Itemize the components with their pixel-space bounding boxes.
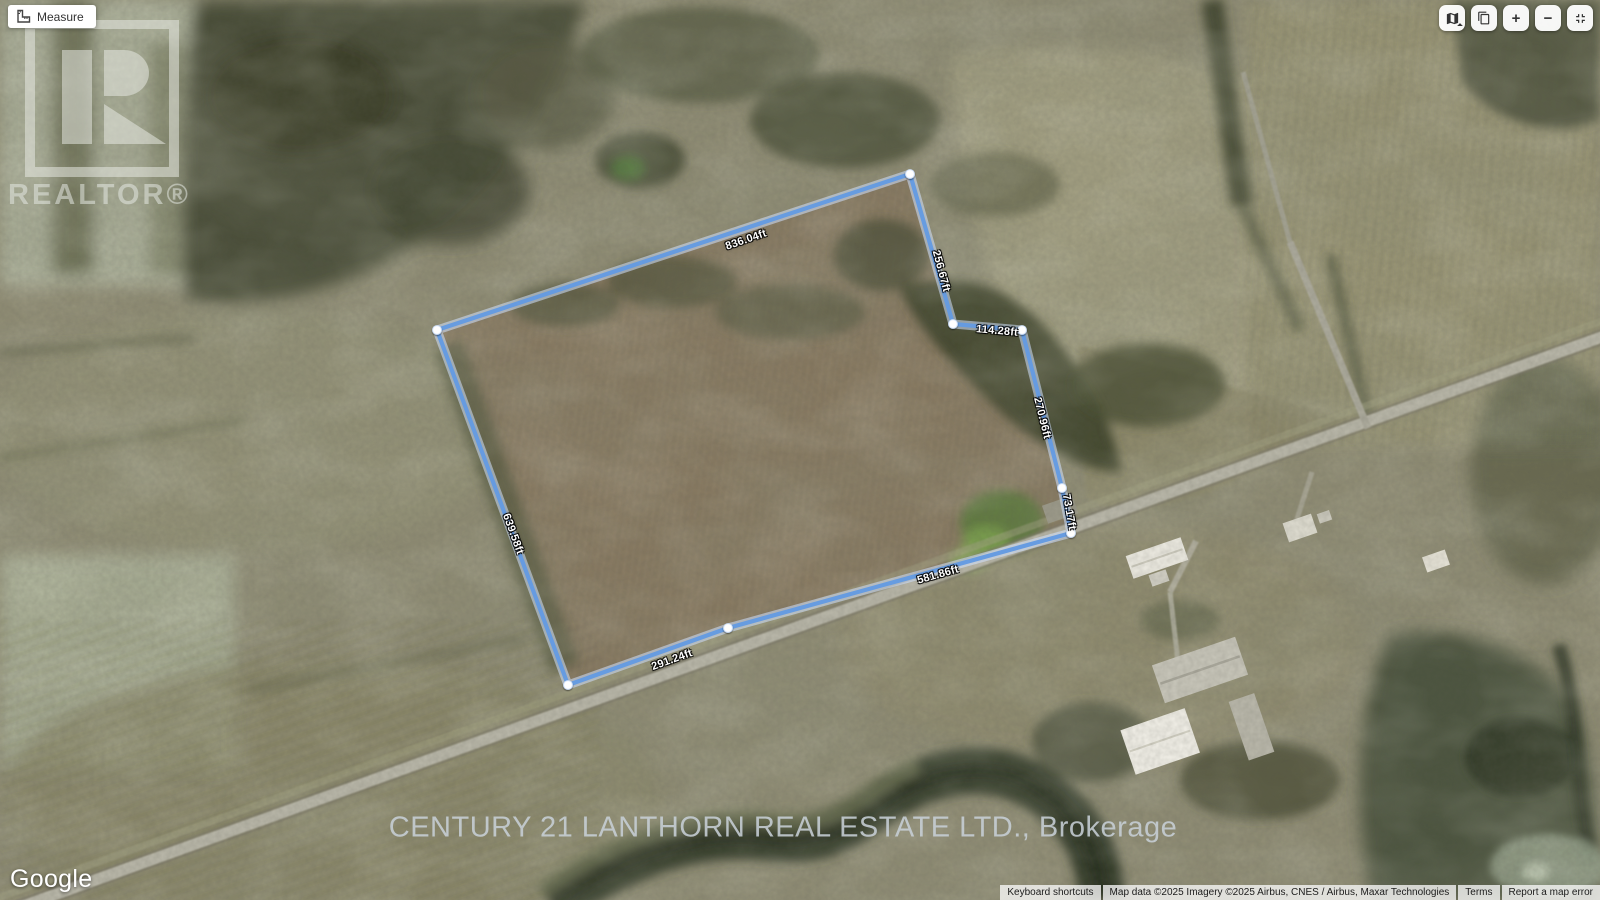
tiles-copy-icon [1477, 11, 1491, 25]
measure-vertex[interactable] [906, 170, 915, 179]
measure-vertex[interactable] [1018, 326, 1027, 335]
fullscreen-exit-icon [1573, 11, 1588, 26]
measure-vertex[interactable] [564, 681, 573, 690]
measure-line [437, 174, 1071, 685]
keyboard-shortcuts-link[interactable]: Keyboard shortcuts [1000, 885, 1100, 900]
tilt-tiles-button[interactable] [1471, 5, 1497, 31]
map-controls: + − [1439, 5, 1593, 31]
measure-button-label: Measure [37, 10, 84, 24]
map-data-attribution: Map data ©2025 Imagery ©2025 Airbus, CNE… [1103, 885, 1457, 900]
measure-vertex[interactable] [433, 326, 442, 335]
measure-button[interactable]: Measure [8, 5, 96, 28]
map-type-button[interactable] [1439, 5, 1465, 31]
zoom-out-button[interactable]: − [1535, 5, 1561, 31]
measure-vertex[interactable] [949, 320, 958, 329]
ruler-icon [16, 9, 31, 24]
map-canvas[interactable]: 836.04ft 256.67ft 114.28ft 270.96ft 73.1… [0, 0, 1600, 900]
measurement-polygon [0, 0, 1600, 900]
measure-vertex[interactable] [724, 624, 733, 633]
map-type-caret-icon [1457, 23, 1463, 29]
zoom-in-button[interactable]: + [1503, 5, 1529, 31]
attribution-bar: Keyboard shortcuts Map data ©2025 Imager… [1000, 885, 1600, 900]
zoom-out-label: − [1544, 10, 1553, 27]
map-type-icon [1445, 11, 1460, 26]
terms-link[interactable]: Terms [1458, 885, 1499, 900]
measure-vertex[interactable] [1058, 484, 1067, 493]
report-map-error-link[interactable]: Report a map error [1502, 885, 1600, 900]
zoom-in-label: + [1512, 10, 1521, 27]
fullscreen-exit-button[interactable] [1567, 5, 1593, 31]
measure-line-casing [437, 174, 1071, 685]
google-logo[interactable]: Google [10, 865, 92, 894]
